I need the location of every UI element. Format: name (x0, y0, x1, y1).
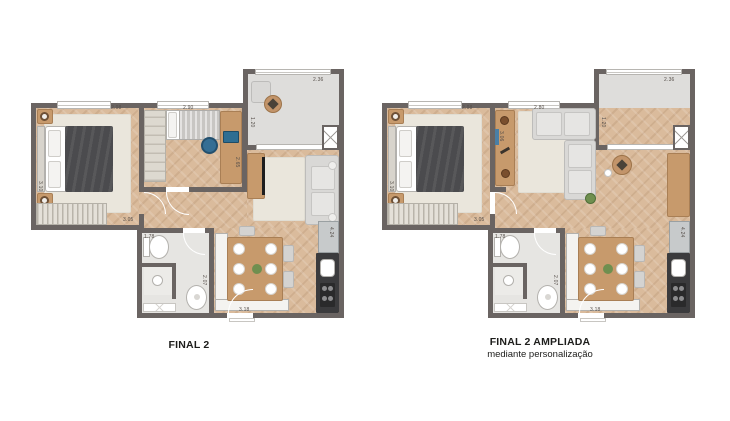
plate (616, 243, 628, 255)
duvet (416, 126, 464, 192)
wall (488, 228, 534, 233)
burner (673, 286, 678, 291)
balcony-sliding-door (607, 144, 677, 150)
desk (220, 111, 242, 184)
decor-bowl (500, 116, 509, 125)
dining-chair (634, 271, 645, 288)
dim-hall-length: 3.05 (123, 217, 134, 223)
duct-shaft (673, 125, 690, 150)
tv (262, 157, 265, 195)
lamp (391, 112, 400, 121)
wall (604, 313, 695, 318)
dim-balcony-width: 2.36 (664, 77, 675, 83)
shower-head (152, 275, 163, 286)
centerpiece-plant (252, 264, 262, 274)
burner (328, 296, 333, 301)
dim-hall-length: 3.05 (474, 217, 485, 223)
shower-wall (172, 263, 176, 299)
dim-living-depth: 3.06 (498, 131, 504, 142)
balcony-window (606, 69, 682, 75)
burner (322, 296, 327, 301)
dim-balcony-depth: 1.20 (600, 117, 606, 128)
dining-chair (590, 226, 606, 236)
bedroom1-window (408, 101, 462, 109)
kitchen-sink (671, 259, 686, 277)
wood-bench (667, 153, 690, 217)
entry-step (580, 318, 606, 322)
floorplan-final-2-ampliada: 2.98 3.10 2.80 3.06 2.36 1.20 3.05 1.78 … (382, 69, 698, 319)
shower-wall (523, 263, 527, 299)
plate (233, 263, 245, 275)
pillow (399, 130, 412, 157)
wall (31, 225, 139, 230)
bath-mat (494, 303, 527, 312)
kitchen-sink (320, 259, 335, 277)
burner (322, 286, 327, 291)
sofa-cushion (568, 170, 592, 194)
dim-bedroom2-width: 2.90 (183, 105, 194, 111)
dim-bedroom2-depth: 2.65 (234, 157, 240, 168)
dim-kitchen-depth: 4.24 (679, 227, 685, 238)
wall (382, 225, 490, 230)
duvet (65, 126, 113, 192)
dim-bedroom1-width: 2.98 (462, 105, 473, 111)
wall (137, 313, 227, 318)
floorplan-final-2: 2.98 3.10 2.90 2.65 2.36 1.20 3.05 1.78 … (31, 69, 347, 319)
sink-drain (194, 294, 200, 300)
plant-pot (604, 169, 612, 177)
wall (253, 313, 344, 318)
dining-chair (283, 271, 294, 288)
dim-kitchen-width: 3.18 (590, 307, 601, 313)
dim-bathroom-depth: 2.07 (201, 275, 207, 286)
plan-title: FINAL 2 AMPLIADA (382, 336, 698, 348)
sofa-cushion (568, 144, 592, 168)
pillow (48, 161, 61, 188)
bath-mat (143, 303, 176, 312)
burner (673, 296, 678, 301)
pillow (399, 161, 412, 188)
wall (339, 69, 344, 318)
plan-caption-final-2: FINAL 2 (31, 339, 347, 351)
balcony-window (255, 69, 331, 75)
wall (690, 69, 695, 318)
duct-shaft (322, 125, 339, 150)
plate (265, 243, 277, 255)
dim-bathroom-depth: 2.07 (552, 275, 558, 286)
dim-bathroom-width: 1.78 (144, 234, 155, 240)
dining-chair (239, 226, 255, 236)
dim-bathroom-width: 1.78 (495, 234, 506, 240)
dim-kitchen-width: 3.18 (239, 307, 250, 313)
wall (488, 228, 493, 318)
throw-pillow (328, 161, 337, 170)
sofa-cushion (536, 112, 562, 136)
dim-balcony-depth: 1.20 (249, 117, 255, 128)
wall (488, 313, 578, 318)
dining-chair (634, 245, 645, 262)
plate (616, 283, 628, 295)
wardrobe-shelves (144, 110, 166, 182)
sink-drain (545, 294, 551, 300)
bedroom1-window (57, 101, 111, 109)
floorplan-sheet: 2.98 3.10 2.90 2.65 2.36 1.20 3.05 1.78 … (0, 0, 730, 421)
wardrobe (387, 203, 458, 225)
lamp (40, 112, 49, 121)
plate (233, 243, 245, 255)
plate (584, 263, 596, 275)
pillow (168, 112, 177, 138)
plan-caption-final-2-ampliada: FINAL 2 AMPLIADA mediante personalização (382, 336, 698, 360)
sofa-cushion (564, 112, 590, 136)
entry-step (229, 318, 255, 322)
plan-subtitle: mediante personalização (382, 349, 698, 360)
plate (265, 263, 277, 275)
dim-bedroom1-depth: 3.10 (388, 181, 394, 192)
shower-head (503, 275, 514, 286)
plant (585, 193, 596, 204)
decor-bowl (501, 169, 510, 178)
plan-title: FINAL 2 (31, 339, 347, 351)
pillow (48, 130, 61, 157)
dim-bedroom1-width: 2.98 (111, 105, 122, 111)
dining-chair (283, 245, 294, 262)
laptop (223, 131, 239, 143)
dim-living-width: 2.80 (534, 105, 545, 111)
wardrobe (36, 203, 107, 225)
dim-kitchen-depth: 4.24 (328, 227, 334, 238)
burner (679, 286, 684, 291)
striped-duvet (179, 110, 220, 140)
balcony-sliding-door (256, 144, 326, 150)
burner (328, 286, 333, 291)
plate (584, 243, 596, 255)
burner (679, 296, 684, 301)
office-chair (201, 137, 218, 154)
wall (560, 228, 565, 318)
wall (137, 228, 183, 233)
wall (209, 228, 214, 318)
dim-balcony-width: 2.36 (313, 77, 324, 83)
dim-bedroom1-depth: 3.10 (37, 181, 43, 192)
plate (616, 263, 628, 275)
plate (265, 283, 277, 295)
centerpiece-plant (603, 264, 613, 274)
wall (189, 187, 247, 192)
wall (137, 228, 142, 318)
